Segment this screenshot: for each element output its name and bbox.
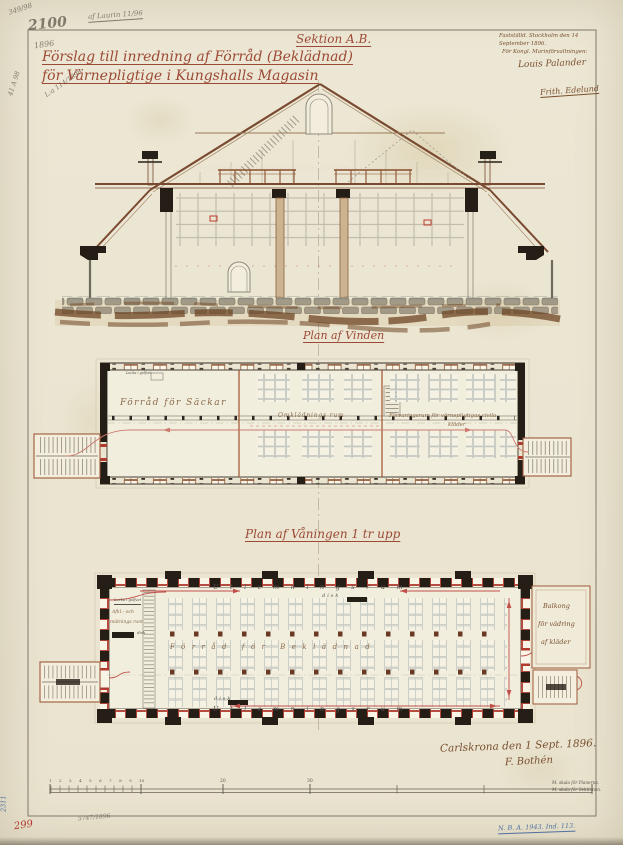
left-room-note: Lucka i golfvet — [114, 598, 141, 602]
left-room-line3: disk — [137, 631, 145, 636]
room-label-sacks: Förråd för Säckar — [120, 398, 227, 408]
approval-line1: Fastställd. Stockholm den 14 — [499, 33, 578, 39]
approval-line2: September 1896. — [499, 41, 546, 47]
scale-tick-30: 30 — [307, 779, 313, 784]
desk-counter — [112, 632, 134, 638]
room-label-changing: Omklädnings rum — [278, 413, 344, 420]
drawing-title-line2: för Värnepligtige i Kungshalls Magasin — [42, 68, 318, 84]
band-label-mid: Förråd för Beklädnad — [170, 643, 376, 651]
room-label-storage2: kläder — [448, 422, 465, 428]
drawing-linework — [0, 0, 623, 845]
balcony-line3: af kläder — [541, 639, 570, 646]
desk-counter — [347, 597, 367, 602]
hatch-note: Lucka i golfvet — [126, 372, 152, 376]
archive-number-side: 2311 — [1, 795, 8, 812]
plan-vinden-label: Plan af Vinden — [303, 330, 384, 343]
section-label: Sektion A.B. — [296, 33, 371, 47]
eave-cornice-left — [80, 246, 106, 260]
stair-left — [40, 662, 100, 702]
drawing-sheet: 349/98 2100 1896 af Laurin 11/96 L:a 114… — [0, 0, 623, 845]
band-label-top: Utlemningsrum — [213, 584, 414, 591]
scale-note2: M. skala för Sektionen. — [552, 788, 601, 793]
band-label-bottom: Utlemningsrum — [213, 706, 414, 713]
stair-right — [533, 670, 577, 704]
left-room-line1: Afkl.- och — [112, 610, 134, 615]
room-label-storage1: Förvaringsrum för värnepligtigas civila — [389, 413, 496, 419]
scale-numbers: 1 2 3 4 5 6 7 8 9 10 — [49, 779, 144, 784]
wall-windows-top — [109, 364, 516, 370]
section-shelving — [176, 193, 464, 246]
left-room-line2: mätnings rum — [110, 620, 143, 625]
stair-right — [523, 438, 571, 476]
pillar — [340, 198, 348, 298]
wall-windows-bottom — [109, 478, 516, 484]
approval-line3: För Kongl. Marinförvaltningen: — [502, 49, 587, 55]
pillar — [276, 198, 284, 298]
attic-floor-plan — [34, 359, 571, 488]
plan-vaning-label: Plan af Våningen 1 tr upp — [245, 528, 400, 542]
attic-posts — [200, 140, 448, 183]
balcony-line2: för vädring — [538, 621, 575, 628]
scale-bar — [50, 784, 592, 794]
wall-left — [100, 587, 109, 709]
drawing-title-line1: Förslag till inredning af Förråd (Bekläd… — [42, 49, 353, 65]
desk-label-bottom: disk — [214, 697, 232, 703]
desk-label-top: disk — [322, 594, 340, 600]
scale-tick-20: 20 — [220, 779, 226, 784]
shelf-bands — [162, 598, 507, 707]
balcony-line1: Balkong — [543, 603, 570, 610]
scale-note1: M. skala för Planerna. — [552, 781, 599, 786]
eave-cornice-right — [518, 246, 544, 260]
